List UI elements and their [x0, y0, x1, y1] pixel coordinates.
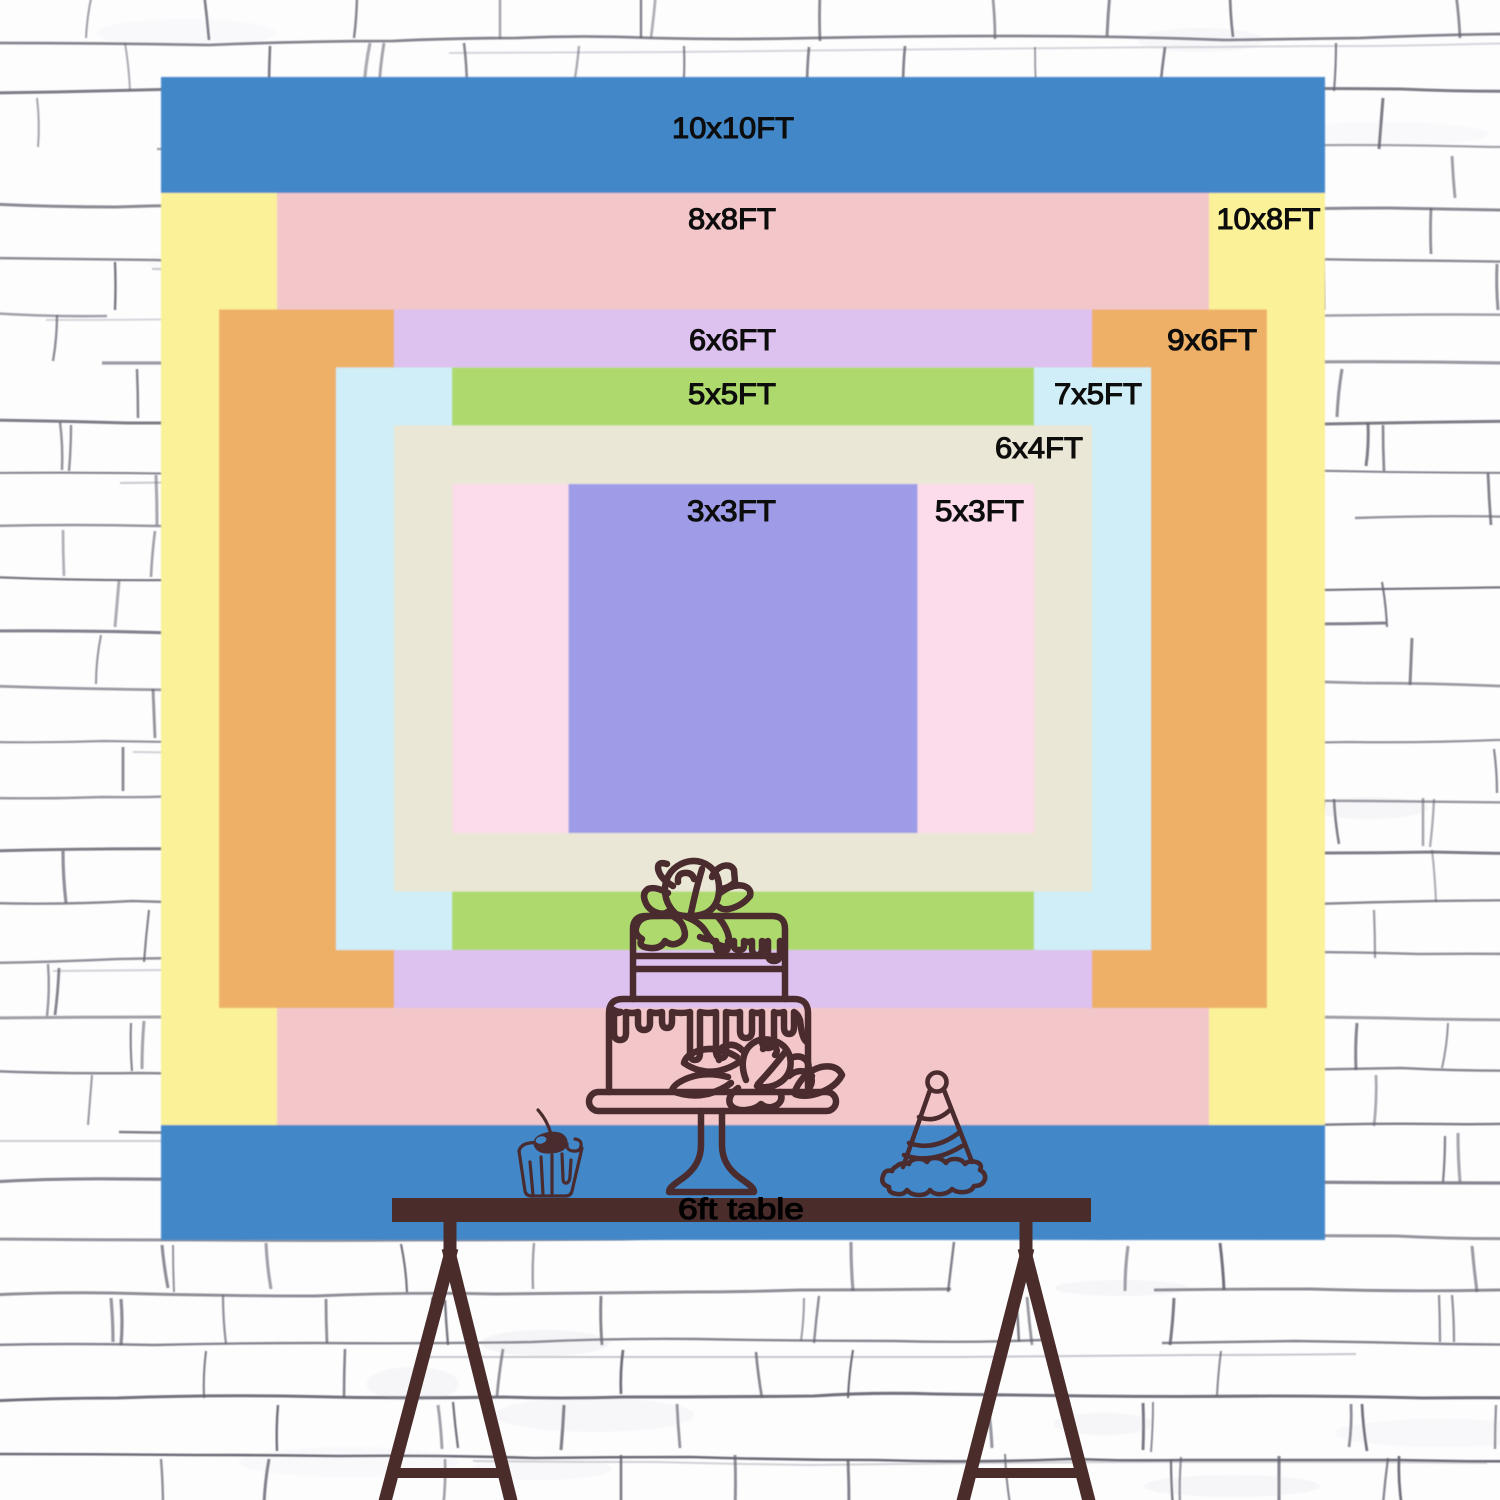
- svg-text:7x5FT: 7x5FT: [1054, 378, 1142, 411]
- svg-text:10x10FT: 10x10FT: [672, 112, 794, 145]
- svg-text:3x3FT: 3x3FT: [687, 495, 776, 528]
- svg-text:9x6FT: 9x6FT: [1167, 324, 1257, 357]
- svg-text:6ft table: 6ft table: [678, 1193, 804, 1226]
- svg-text:6x4FT: 6x4FT: [995, 432, 1083, 465]
- svg-text:5x5FT: 5x5FT: [688, 378, 776, 411]
- svg-text:8x8FT: 8x8FT: [688, 203, 776, 236]
- svg-text:5x3FT: 5x3FT: [935, 495, 1024, 528]
- svg-text:10x8FT: 10x8FT: [1217, 203, 1321, 236]
- svg-text:6x6FT: 6x6FT: [689, 324, 776, 357]
